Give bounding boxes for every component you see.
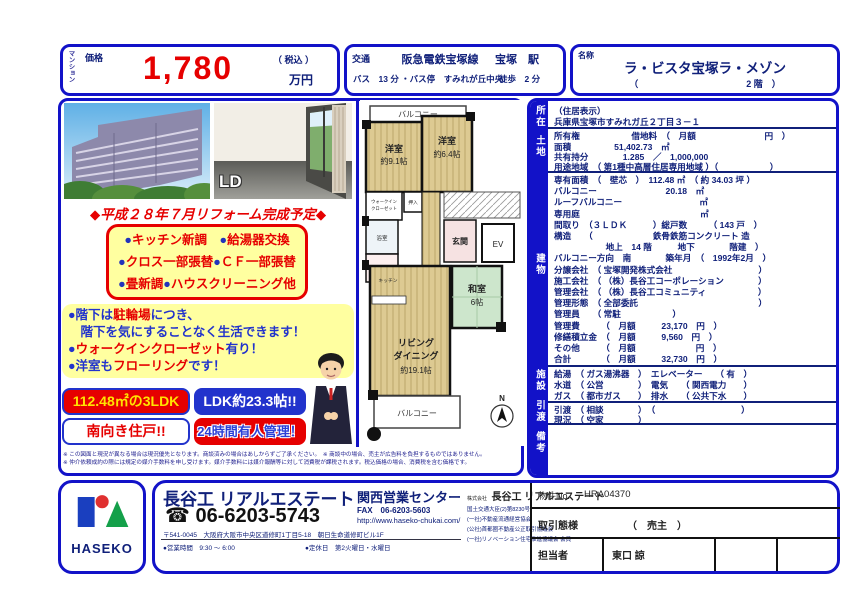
footer-url: http://www.haseko-chukai.com/	[357, 516, 460, 525]
haseko-logo-icon	[74, 491, 134, 533]
spec-row: ルーフバルコニー ㎡	[554, 196, 708, 208]
spec-row: 専用庭 ㎡	[554, 208, 709, 220]
spec-row: 用途地域 （ 第1種中高層住居専用地域 ）（ ）	[554, 161, 778, 173]
footer-center: 関西営業センター	[357, 487, 461, 506]
bullet-icon: ●	[213, 255, 221, 269]
bullet-icon: ●	[220, 233, 228, 247]
transport-label: 交通	[352, 52, 370, 65]
tanto-value: 東口 諒	[612, 547, 645, 562]
property-name: ラ・ビスタ宝塚ラ・メゾン	[573, 57, 837, 77]
price-value: 1,780	[108, 50, 268, 87]
svg-text:クローゼット: クローゼット	[371, 205, 397, 212]
bullet-icon: ●	[118, 255, 126, 269]
footer-address: 〒541-0045 大阪府大阪市中央区道修町1丁目5-18 朝日生命道修町ビル1…	[163, 529, 384, 539]
bullet-icon: ●	[124, 233, 132, 247]
spec-row: 兵庫県宝塚市すみれガ丘２丁目３－１	[554, 116, 700, 128]
price-label: 価格	[85, 51, 103, 64]
name-box: 名称 ラ・ビスタ宝塚ラ・メゾン （ 2 階 ）	[570, 44, 840, 96]
fine-print-line: ※ 仲介依頼成約の際には規定の媒介手数料を申し受けます。媒介手数料には媒介報酬等…	[63, 459, 470, 467]
section-label-shisetsu: 施設	[532, 369, 546, 392]
feature-line: 階下を気にすることなく生活できます！	[68, 324, 348, 341]
section-label-tochi: 土地	[532, 135, 546, 158]
room1-label: 洋室	[385, 143, 403, 154]
footer-holiday: ●定休日 第2火曜日・水曜日	[305, 542, 391, 552]
torihiki-row: 取引態様 （ 売主 ）	[532, 509, 840, 539]
reform-item-line: ●クロス一部張替●ＣＦ一部張替	[109, 251, 305, 273]
balcony-bottom-label: バルコニー	[397, 409, 437, 418]
room2-size: 約6.4帖	[433, 149, 460, 159]
property-type-vertical: マンション	[65, 50, 75, 94]
torihiki-value: （ 売主 ）	[627, 517, 687, 532]
phone-icon: ☎	[165, 505, 190, 527]
room2-label: 洋室	[438, 135, 456, 146]
info-grid: 物件No. HRA04370 取引態様 （ 売主 ） 担当者 東口 諒	[530, 483, 840, 571]
feature-line: ●ウォークインクローゼット有り！	[68, 341, 348, 358]
haseko-logo-text: HASEKO	[61, 541, 143, 556]
tanto-label: 担当者	[538, 547, 568, 562]
license-line: (一社)不動産流通経営協会	[467, 515, 531, 523]
spec-table: 所在 土地 建物 施設 引渡 備考 （住居表示） 兵庫県宝塚市すみれガ丘２丁目３…	[527, 98, 839, 478]
reform-item-line: ●キッチン新調 ●給湯器交換	[109, 229, 305, 251]
entrance-label: 玄関	[452, 236, 468, 246]
badge-management: 24時間有人管理！	[194, 418, 306, 445]
ld-label2: ダイニング	[393, 350, 438, 361]
spec-row: ガス （ 都市ガス ） 排水 （ 公共下水 ）	[554, 390, 752, 402]
spec-row: 分譲会社 （ 宝塚開発株式会社 ）	[554, 264, 767, 276]
grid-line	[714, 539, 716, 571]
price-unit: 万円	[289, 71, 313, 88]
vertical-divider	[356, 100, 359, 447]
floor-plan: バルコニー 洋室 約9.1帖 洋室 約6.4帖 ウォークイン クローゼット 押入…	[360, 100, 524, 446]
bukken-label: 物件No.	[538, 489, 570, 502]
spec-row: 間取り （３ＬＤＫ ）総戸数 （ 143 戸 ）	[554, 219, 762, 231]
room1-size: 約9.1帖	[380, 156, 407, 166]
rail-line: 阪急電鉄宝塚線	[385, 51, 495, 67]
footer-tel: 06-6203-5743	[195, 505, 320, 527]
ld-photo-label: LD	[219, 172, 242, 192]
feature-line: ●洋室もフローリングです！	[68, 358, 348, 375]
oshiire-label: 押入	[408, 199, 418, 206]
ld-size: 約19.1帖	[400, 365, 432, 375]
badge-size: 112.48㎡の3LDK	[62, 388, 190, 415]
footer-rule	[161, 539, 461, 540]
station: 宝塚 駅	[495, 51, 539, 67]
reform-items-box: ●キッチン新調 ●給湯器交換 ●クロス一部張替●ＣＦ一部張替 ●畳新調●ハウスク…	[106, 224, 308, 300]
spec-row: 管理員 （ 常駐 ）	[554, 308, 681, 320]
reform-item-line: ●畳新調●ハウスクリーニング他	[109, 273, 305, 295]
section-label-tatemono: 建物	[532, 253, 546, 276]
section-label-shozai: 所在	[532, 105, 546, 128]
feature-line: ●階下は駐輪場につき、	[68, 307, 348, 324]
property-floor: （ 2 階 ）	[573, 77, 837, 90]
torihiki-label: 取引態様	[538, 517, 578, 532]
flyer-page: マンション 価格 1,780 （ 税込 ） 万円 交通 阪急電鉄宝塚線 宝塚 駅…	[0, 0, 842, 595]
washitsu-size: 6帖	[471, 297, 483, 307]
section-divider	[548, 365, 839, 367]
salesman-illustration	[308, 350, 354, 448]
wic-label: ウォークイン	[371, 198, 397, 205]
ld-label1: リビング	[398, 337, 434, 348]
price-box: マンション 価格 1,780 （ 税込 ） 万円	[60, 44, 340, 96]
footer-box: 長谷工 リアルエステート 関西営業センター ☎ 06-6203-5743 FAX…	[152, 480, 840, 574]
spec-row: 合計 （ 月額 32,730 円 ）	[554, 353, 722, 365]
spec-row: 管理形態 （ 全部委託 ）	[554, 297, 767, 309]
bukken-no: HRA04370	[584, 489, 630, 500]
spec-row: 専有面積 （ 壁芯 ） 112.48 ㎡ （ 約 34.03 坪 ）	[554, 174, 755, 186]
spec-row: 現況 （ 空家 ）	[554, 414, 647, 426]
bullet-icon: ●	[163, 277, 171, 291]
kitchen-label: キッチン	[378, 278, 397, 284]
spec-row: その他 （ 月額 円 ）	[554, 342, 722, 354]
footer-fax: FAX 06-6203-5603	[357, 505, 430, 516]
spec-row: 構造 （ 鉄骨鉄筋コンクリート 造	[554, 230, 750, 242]
corp-small: 株式会社	[467, 496, 487, 502]
price-tax-note: （ 税込 ）	[273, 53, 314, 66]
compass-north: N	[499, 394, 505, 403]
spec-row: 修繕積立金 （ 月額 9,560 円 ）	[554, 331, 717, 343]
badge-ldk: LDK約23.3帖!!	[194, 388, 306, 415]
grid-line	[776, 539, 778, 571]
logo-box: HASEKO	[58, 480, 146, 574]
spec-row: バルコニー方向 南 築年月 （ 1992年2月 ）	[554, 252, 771, 264]
spec-row: 施工会社 （ （株）長谷工コーポレーション ）	[554, 275, 767, 287]
bus-info: バス 13 分 ・バス停 すみれが丘中央	[353, 73, 503, 85]
bukken-row: 物件No. HRA04370	[532, 483, 840, 509]
badge-south: 南向き住戸!!	[62, 418, 190, 445]
fine-print-line: ※ この図面と現況が異なる場合は現況優先となります。商談済みの場合はあしからずご…	[63, 451, 486, 459]
building-photo	[64, 103, 210, 199]
bullet-icon: ●	[118, 277, 126, 291]
footer-tel-line: ☎ 06-6203-5743	[165, 503, 320, 528]
spec-row: 管理費 （ 月額 23,170 円 ）	[554, 320, 722, 332]
elevator-label: EV	[493, 240, 504, 249]
spec-row: 地上 14 階 地下 階建 ）	[554, 241, 764, 253]
grid-line	[602, 539, 604, 571]
section-label-hikiwatashi: 引渡	[532, 400, 546, 423]
spec-row: バルコニー 20.18 ㎡	[554, 185, 704, 197]
transport-box: 交通 阪急電鉄宝塚線 宝塚 駅 バス 13 分 ・バス停 すみれが丘中央 徒歩 …	[344, 44, 566, 96]
washitsu-label: 和室	[467, 283, 486, 294]
walk-info: 徒歩 2 分	[499, 73, 540, 85]
bath-label: 浴室	[376, 234, 388, 242]
reform-banner: ◆平成２８年７月リフォーム完成予定◆	[60, 203, 356, 223]
tanto-row: 担当者 東口 諒	[532, 539, 840, 571]
license-line: 国土交通大臣(2)第8230号	[467, 505, 530, 513]
footer-hours: ●営業時間 9:30 ～ 6:00	[163, 542, 235, 552]
spec-row: 管理会社 （ （株）長谷工コミュニティ ）	[554, 286, 766, 298]
section-label-biko: 備考	[532, 431, 546, 454]
